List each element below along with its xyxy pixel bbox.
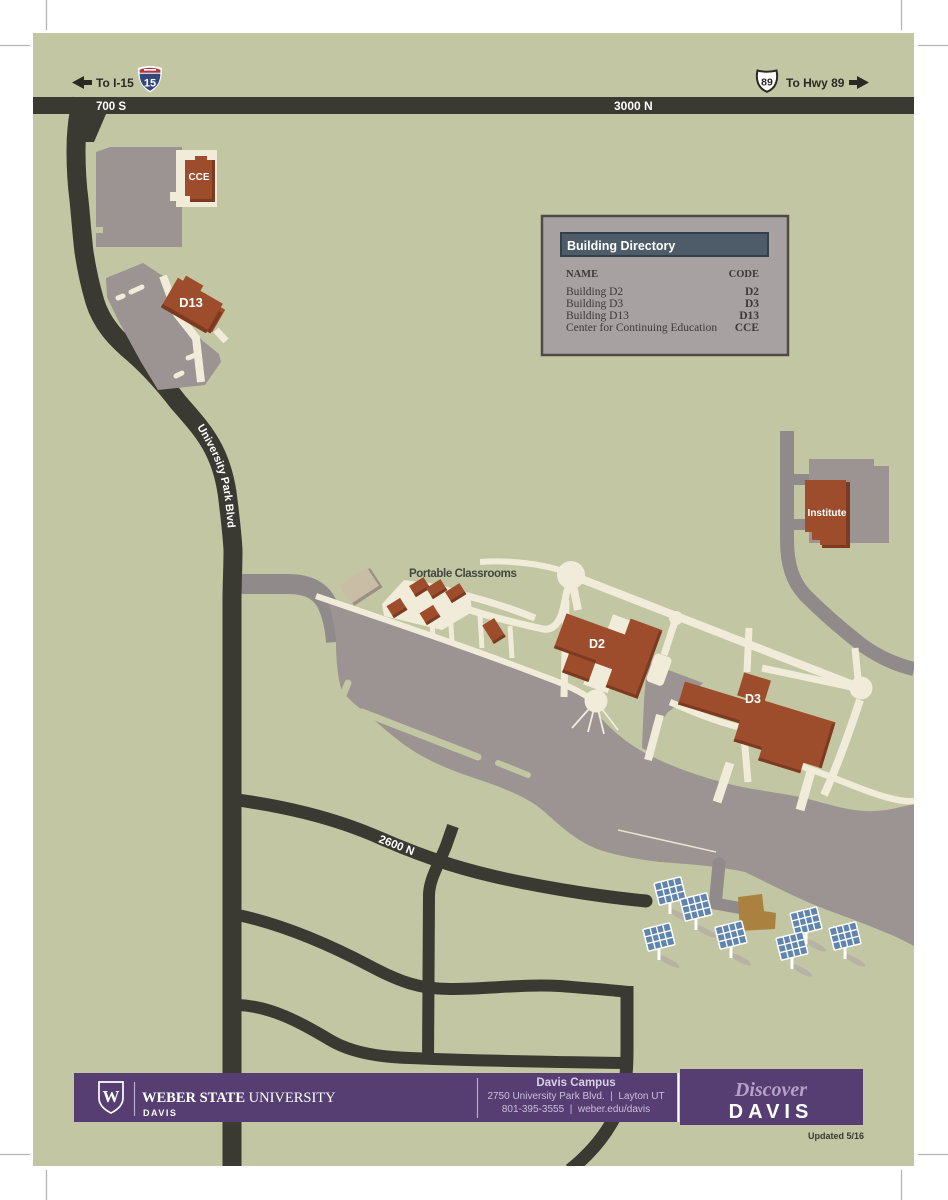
- svg-text:D2: D2: [589, 637, 605, 651]
- svg-text:D3: D3: [745, 692, 761, 706]
- svg-text:CODE: CODE: [729, 269, 759, 280]
- svg-text:Building D2: Building D2: [566, 286, 623, 298]
- svg-text:D3: D3: [745, 298, 759, 310]
- svg-text:3000 N: 3000 N: [614, 99, 653, 113]
- svg-text:89: 89: [761, 77, 773, 89]
- svg-text:NAME: NAME: [566, 269, 598, 280]
- svg-text:Building D3: Building D3: [566, 298, 623, 310]
- svg-text:Portable Classrooms: Portable Classrooms: [409, 568, 516, 580]
- svg-text:DAVIS: DAVIS: [143, 1108, 177, 1118]
- svg-text:DAVIS: DAVIS: [729, 1101, 814, 1123]
- svg-text:700 S: 700 S: [96, 101, 126, 113]
- svg-text:Building Directory: Building Directory: [567, 239, 675, 253]
- svg-text:801-395-3555 | weber.edu/dav: 801-395-3555 | weber.edu/davis: [502, 1104, 650, 1115]
- svg-text:Center for Continuing Educatio: Center for Continuing Education: [566, 322, 717, 334]
- svg-text:Institute: Institute: [808, 508, 847, 519]
- svg-text:Davis Campus: Davis Campus: [536, 1077, 615, 1089]
- svg-text:CCE: CCE: [188, 172, 209, 183]
- svg-text:D13: D13: [739, 310, 759, 322]
- svg-text:2750 University Park Blvd. |: 2750 University Park Blvd. | Layton UT: [487, 1091, 664, 1102]
- svg-text:W: W: [103, 1087, 120, 1106]
- svg-text:WEBER STATE UNIVERSITY: WEBER STATE UNIVERSITY: [142, 1090, 336, 1106]
- svg-text:To I-15: To I-15: [96, 76, 134, 90]
- svg-text:CCE: CCE: [735, 322, 760, 334]
- svg-text:To Hwy 89: To Hwy 89: [786, 76, 845, 90]
- svg-text:D2: D2: [745, 286, 759, 298]
- svg-text:D13: D13: [179, 295, 203, 310]
- svg-text:Building D13: Building D13: [566, 310, 629, 322]
- svg-text:Updated 5/16: Updated 5/16: [808, 1131, 864, 1141]
- svg-text:15: 15: [144, 78, 156, 90]
- svg-text:Discover: Discover: [734, 1079, 807, 1101]
